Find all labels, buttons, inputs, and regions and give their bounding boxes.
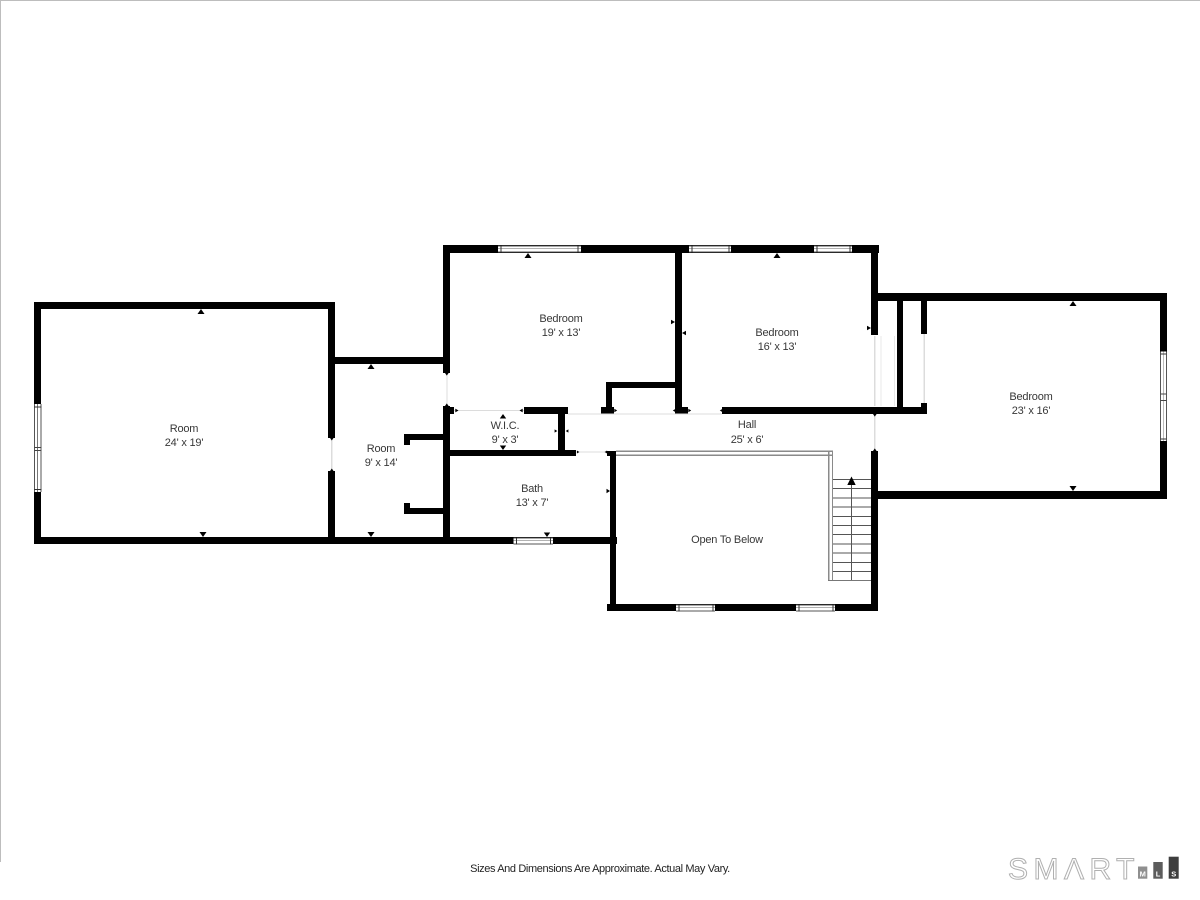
- svg-text:Bedroom: Bedroom: [1009, 391, 1052, 403]
- svg-text:9' x 14': 9' x 14': [365, 457, 398, 469]
- svg-text:Room: Room: [170, 423, 199, 435]
- svg-text:23' x 16': 23' x 16': [1012, 405, 1051, 417]
- svg-text:Room: Room: [367, 443, 396, 455]
- svg-text:25' x 6': 25' x 6': [731, 434, 764, 446]
- svg-text:13' x 7': 13' x 7': [516, 497, 549, 509]
- svg-text:Bedroom: Bedroom: [755, 327, 798, 339]
- svg-text:S: S: [1171, 870, 1176, 879]
- svg-text:24' x 19': 24' x 19': [165, 437, 204, 449]
- svg-text:Bedroom: Bedroom: [539, 313, 582, 325]
- svg-text:W.I.C.: W.I.C.: [491, 420, 520, 432]
- svg-text:9' x 3': 9' x 3': [492, 434, 519, 446]
- svg-text:Open To Below: Open To Below: [691, 534, 763, 546]
- svg-text:SMΛRT: SMΛRT: [1008, 853, 1140, 886]
- svg-text:M: M: [1140, 870, 1146, 879]
- svg-text:Bath: Bath: [521, 483, 543, 495]
- svg-text:16' x 13': 16' x 13': [758, 341, 797, 353]
- svg-text:Sizes And Dimensions Are Appro: Sizes And Dimensions Are Approximate. Ac…: [470, 863, 730, 875]
- svg-text:L: L: [1156, 870, 1161, 879]
- svg-text:19' x 13': 19' x 13': [542, 327, 581, 339]
- svg-text:Hall: Hall: [738, 419, 756, 431]
